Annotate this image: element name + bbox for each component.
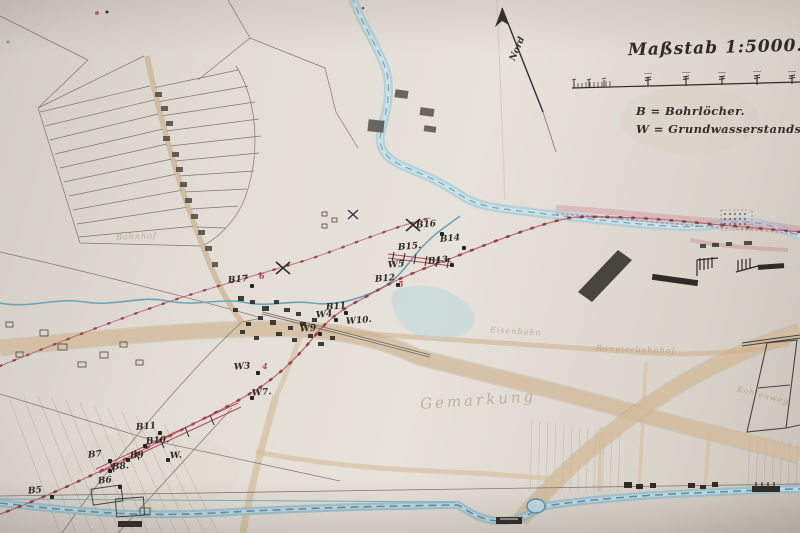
borehole-dot (118, 485, 122, 489)
red-station-number: 6 (259, 272, 265, 280)
borehole-dot (250, 284, 254, 288)
borehole-label: B15. (398, 242, 422, 253)
map-title: Maßstab 1:5000. (628, 36, 800, 61)
borehole-label: B17 (228, 275, 249, 286)
borehole-dot (166, 458, 170, 462)
borehole-label: W4 (316, 310, 333, 320)
borehole-label: B6 (98, 476, 113, 486)
borehole-label: B8. (112, 462, 130, 472)
borehole-label: B13 (428, 256, 449, 267)
borehole-label: W10. (346, 316, 372, 327)
borehole-label: B7 (88, 450, 103, 460)
borehole-label: W7. (252, 388, 272, 399)
map-label-layer: Maßstab 1:5000. B = Bohrlöcher. W = Grun… (0, 0, 800, 533)
borehole-dot (318, 332, 322, 336)
place-name-label: Bahnhof (116, 232, 157, 242)
borehole-label: B12 (375, 274, 396, 285)
historical-map-photo: Maßstab 1:5000. B = Bohrlöcher. W = Grun… (0, 0, 800, 533)
legend-groundwater-pipes: W = Grundwasserstandsrohre. (636, 122, 800, 136)
borehole-dot (450, 263, 454, 267)
borehole-label: B16 (416, 220, 437, 231)
borehole-dot (462, 246, 466, 250)
borehole-dot (158, 431, 162, 435)
borehole-dot (143, 444, 147, 448)
legend-boreholes: B = Bohrlöcher. (636, 104, 745, 118)
borehole-dot (50, 495, 54, 499)
borehole-label: B5 (28, 486, 43, 496)
place-name-label: Eisenbahn (490, 326, 542, 338)
borehole-label: B10. (146, 436, 170, 447)
north-label: Nord (508, 35, 527, 62)
red-station-number: 4 (262, 362, 268, 370)
borehole-label: W5 (388, 260, 405, 270)
borehole-dot (108, 469, 112, 473)
red-station-number: 5 (398, 280, 404, 288)
borehole-dot (334, 318, 338, 322)
place-name-label: Rangierbahnhof (596, 345, 676, 356)
place-name-label: Kohlenweg (736, 386, 790, 407)
borehole-label: W3 (234, 362, 251, 372)
place-name-label: Gemarkung (420, 389, 537, 412)
borehole-dot (250, 396, 254, 400)
borehole-label: B14 (440, 234, 461, 245)
borehole-dot (256, 371, 260, 375)
borehole-label: B9 (130, 451, 145, 461)
borehole-dot (344, 311, 348, 315)
borehole-label: W. (170, 452, 183, 462)
borehole-label: W9 (300, 324, 317, 334)
borehole-label: B11 (136, 422, 157, 433)
